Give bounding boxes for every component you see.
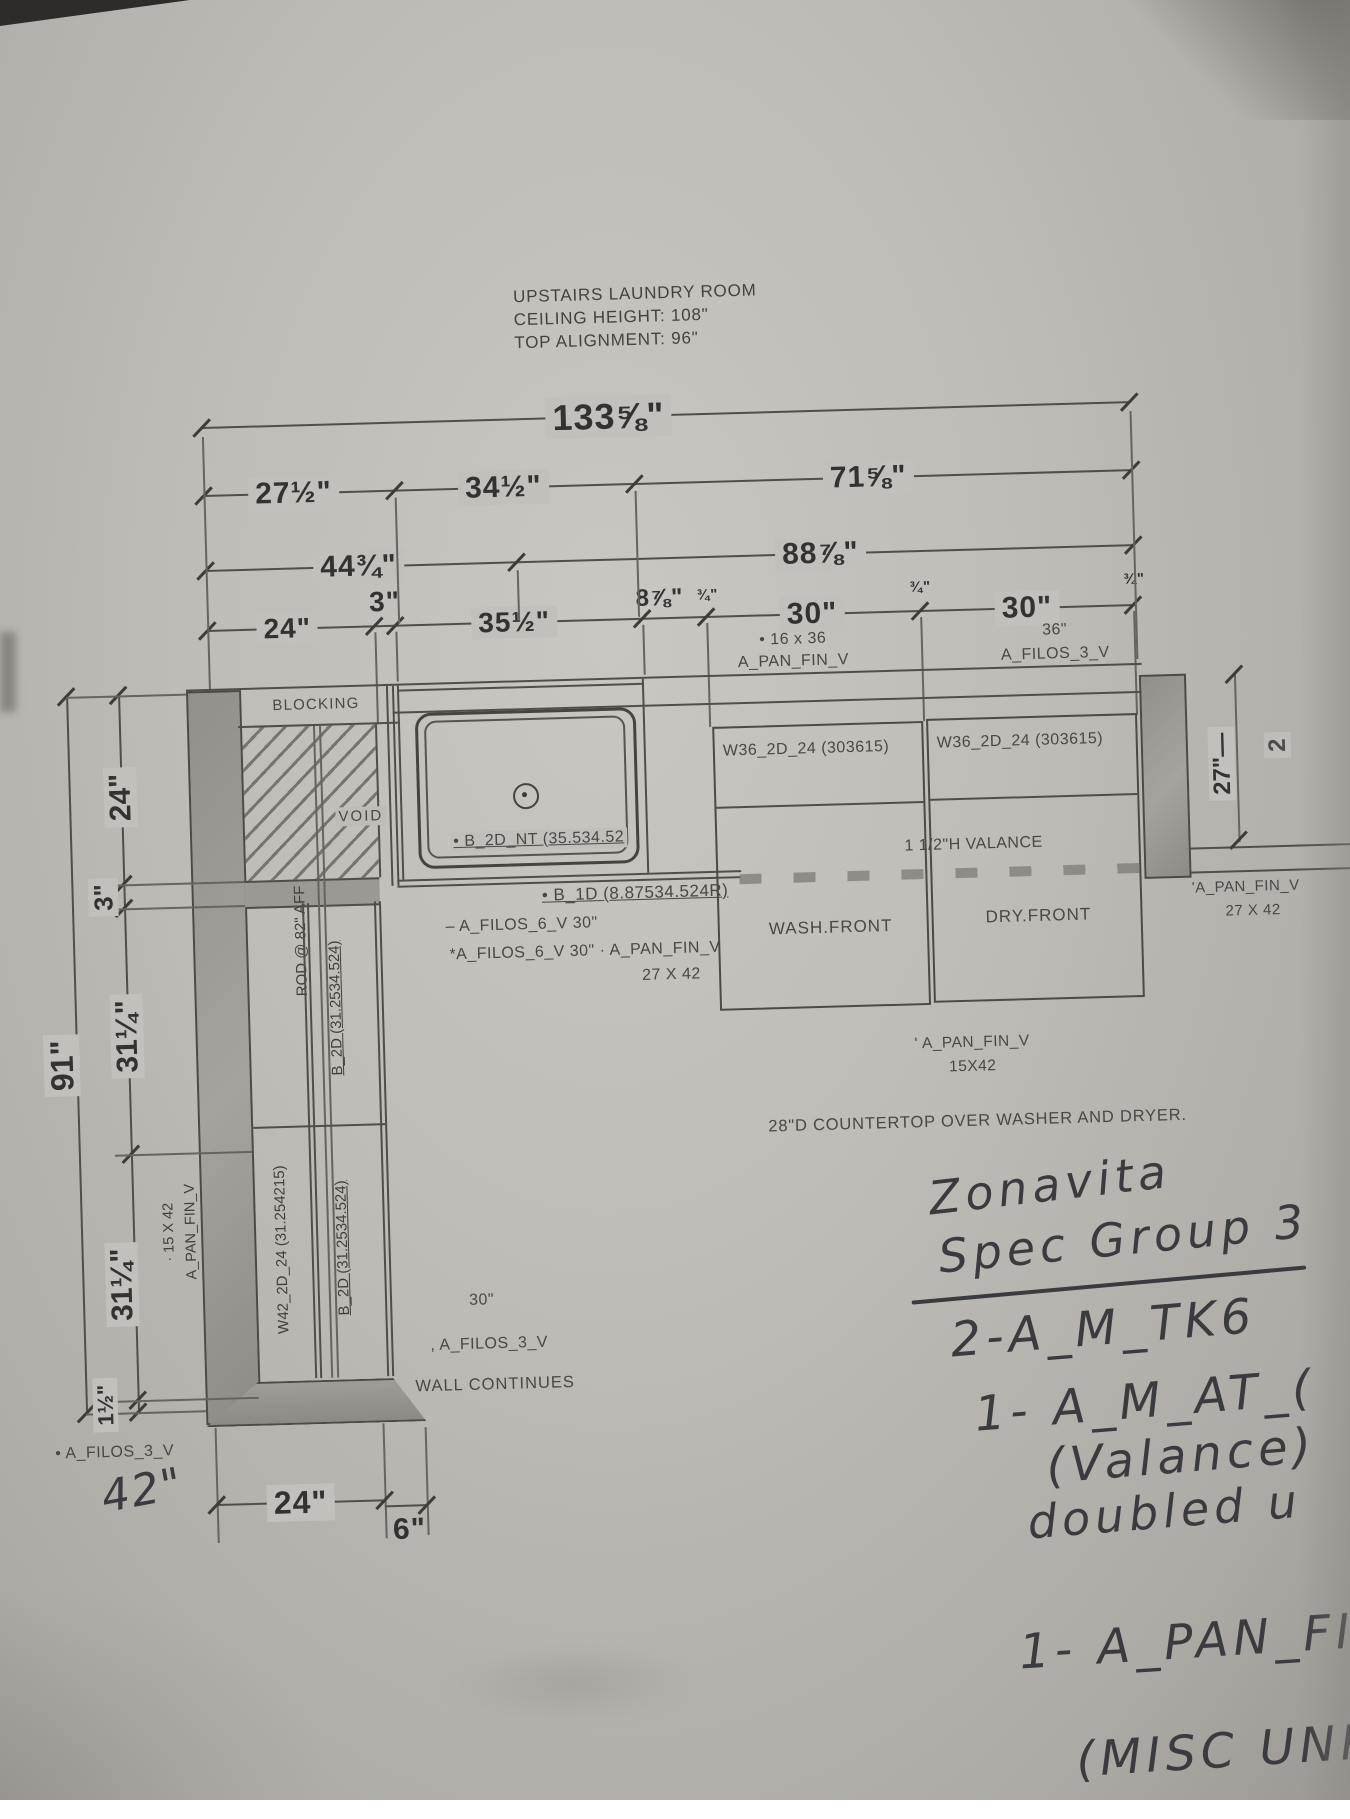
filos6-label-a: – A_FILOS_6_V 30" [445,914,598,936]
label-pan-16x36: • 16 x 36 [759,630,827,650]
dim-88-875: 88⅞" [775,536,867,573]
bottom-dim-6: 6" [391,1512,429,1547]
handwriting-misc: (MISC UNP [1075,1714,1350,1789]
dim-30-a: 30" [779,596,845,632]
left-dim-31a-text: 31¼" [109,994,144,1080]
handwriting-pan-fi: 1- A_PAN_FI [1017,1604,1350,1681]
title-room: UPSTAIRS LAUNDRY ROOM [513,280,757,307]
closet-hatch [242,724,381,881]
left-dim-91: 91" [40,935,84,1196]
wall-cabinet-left [712,721,931,1011]
wall-30-label: 30" [469,1291,494,1310]
dim-8-875: 8⅞" [633,584,686,613]
bottom-dim-24: 24" [266,1483,335,1522]
ghost-text-smudge [441,1640,703,1727]
left-pan-size: · 15 X 42 [157,1102,180,1362]
filos6-label-b: *A_FILOS_6_V 30" · A_PAN_FIN_V [449,939,721,965]
handwriting-tk6: 2-A_M_TK6 [948,1288,1258,1368]
pan-mid-size: 15X42 [949,1057,997,1076]
dim-34-5: 34½" [458,469,550,506]
title-top-alignment: TOP ALIGNMENT: 96" [514,328,699,353]
plan-top-edge [186,663,1142,692]
dim-0-75-a: ¾" [694,586,720,604]
dim-27-5: 27½" [248,475,340,512]
pan-right-label: 'A_PAN_FIN_V [1192,877,1300,897]
valance-label: 1 1/2"H VALANCE [904,834,1043,856]
bottom-dim-line-6 [385,1504,427,1507]
wash-front-label: WASH.FRONT [769,916,893,939]
sink-cab-side [642,679,649,873]
right-wall [1139,674,1192,879]
pan-right-size: 27 X 42 [1225,901,1281,920]
right-dim-fragment: 2 [1260,615,1295,876]
wall-continues-label: WALL CONTINUES [415,1373,575,1396]
wall-filos-label: , A_FILOS_3_V [430,1334,548,1355]
label-pan-16x36-name: A_PAN_FIN_V [738,651,849,672]
wall-cabinet-right [926,713,1145,1003]
extension-line [642,625,645,675]
right-dim-27-text: 27"— [1207,726,1236,801]
dim-line-row2 [204,469,1132,497]
extension-line [382,1423,387,1538]
left-dim-1-5-text: 1½" [92,1378,118,1432]
title-ceiling-height: CEILING HEIGHT: 108" [513,305,708,330]
filos6-label-b2: 27 X 42 [642,965,701,985]
tall-b2d-upper-label: B_2D (31.2534.524) [324,878,348,1138]
left-dim-31a: 31¼" [107,906,148,1167]
dim-44-75: 44¾" [313,548,405,585]
base-b1d-label: • B_1D (8.87534.524R) [542,881,729,906]
extension-line [517,570,520,620]
label-filos36-name: A_FILOS_3_V [1001,644,1110,665]
closet-shelf [244,877,380,909]
dim-overall: 133⅝" [545,394,672,440]
faucet-dot-icon [522,792,527,797]
scanned-paper: UPSTAIRS LAUNDRY ROOM CEILING HEIGHT: 10… [0,0,1350,1800]
extension-line [215,1428,220,1543]
extension-line [395,632,398,682]
pan-mid-label: ' A_PAN_FIN_V [914,1032,1030,1053]
bottom-filos-label: • A_FILOS_3_V [55,1442,174,1463]
blocking-label: BLOCKING [272,695,360,714]
dry-front-label: DRY.FRONT [985,904,1091,927]
void-label: VOID [335,806,386,826]
countertop-note: 28"D COUNTERTOP OVER WASHER AND DRYER. [768,1106,1187,1137]
tall-w42-label: W42_2D_24 (31.254215) [269,1119,293,1379]
left-dim-91-text: 91" [43,1034,81,1098]
dim-35-5: 35½" [471,605,558,639]
tall-b2d-lower-label: B_2D (31.2534.524) [330,1118,354,1378]
dim-71-625: 71⅝" [823,459,915,496]
dim-0-75-b: ¾" [907,578,933,596]
drawing-sheet: UPSTAIRS LAUNDRY ROOM CEILING HEIGHT: 10… [0,0,1350,1818]
label-filos36-size: 36" [1042,621,1067,640]
right-dim-fragment-text: 2 [1264,732,1292,758]
dim-24: 24" [256,612,318,646]
extension-line [374,632,379,724]
